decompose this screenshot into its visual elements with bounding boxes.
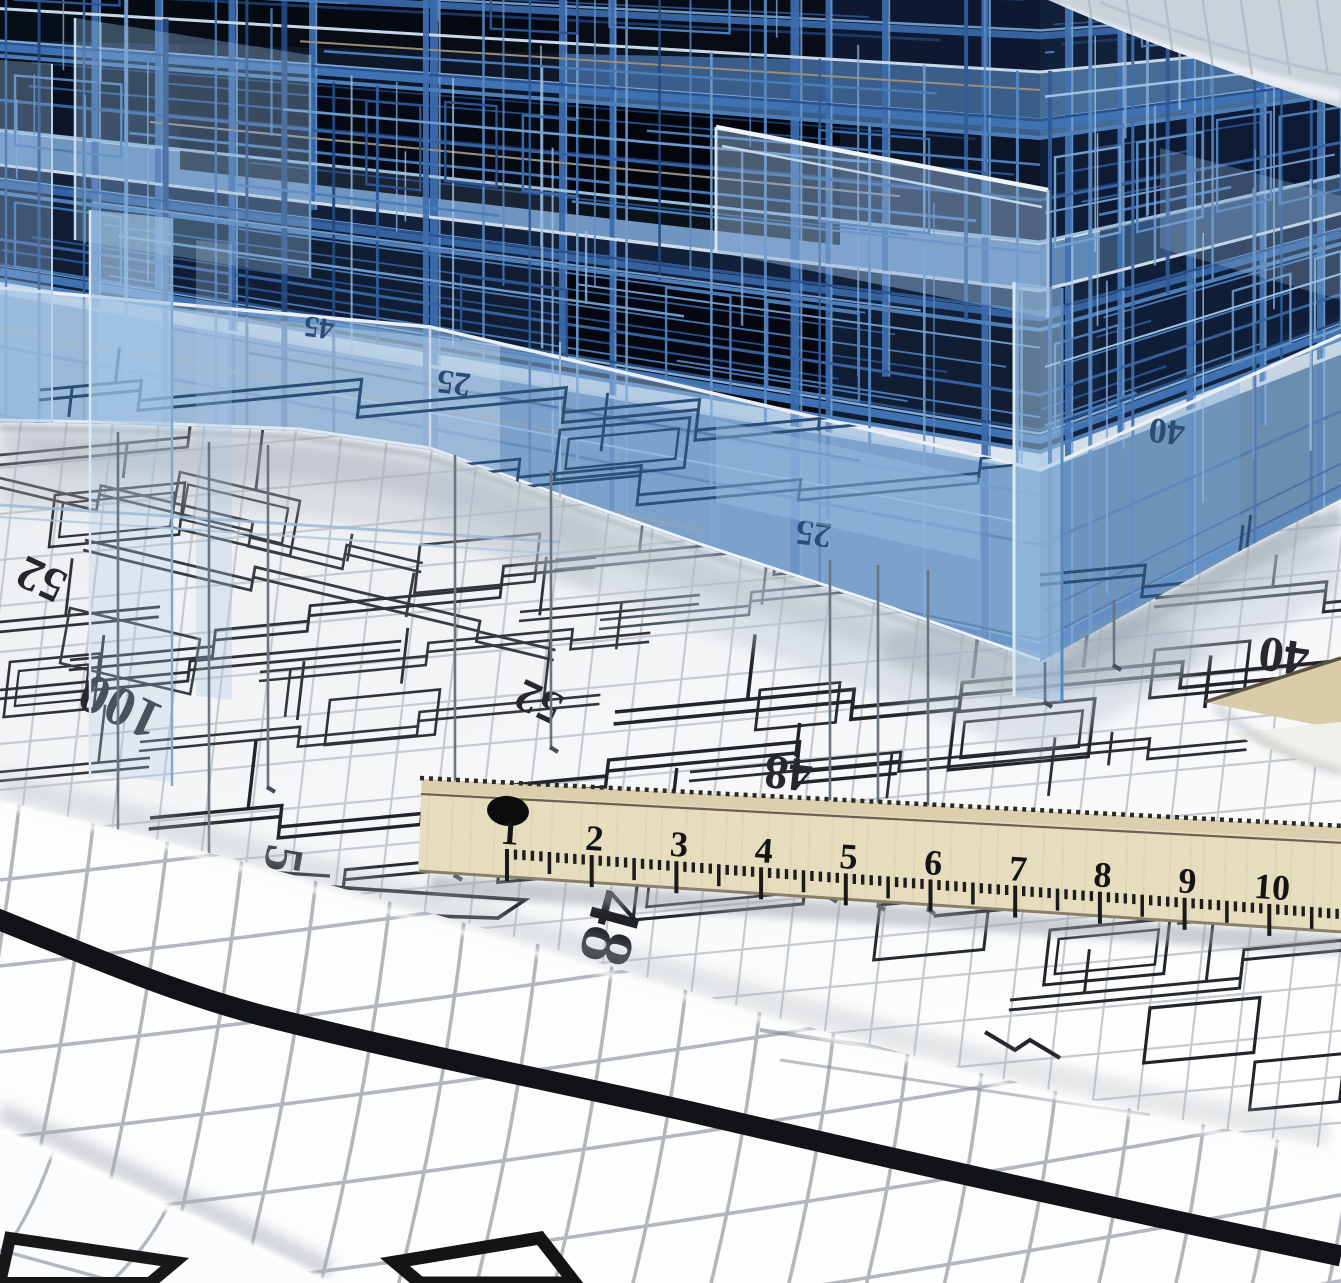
svg-text:6: 6	[923, 842, 944, 883]
svg-text:25: 25	[435, 362, 473, 403]
svg-text:48: 48	[762, 745, 815, 803]
svg-text:5: 5	[838, 836, 859, 877]
svg-text:7: 7	[1008, 848, 1029, 889]
svg-text:4: 4	[754, 830, 775, 871]
svg-text:1: 1	[499, 812, 520, 853]
svg-text:3: 3	[669, 824, 690, 865]
svg-text:2: 2	[584, 818, 605, 859]
svg-text:9: 9	[1177, 860, 1198, 901]
svg-text:10: 10	[1253, 866, 1292, 908]
svg-text:8: 8	[1092, 854, 1113, 895]
